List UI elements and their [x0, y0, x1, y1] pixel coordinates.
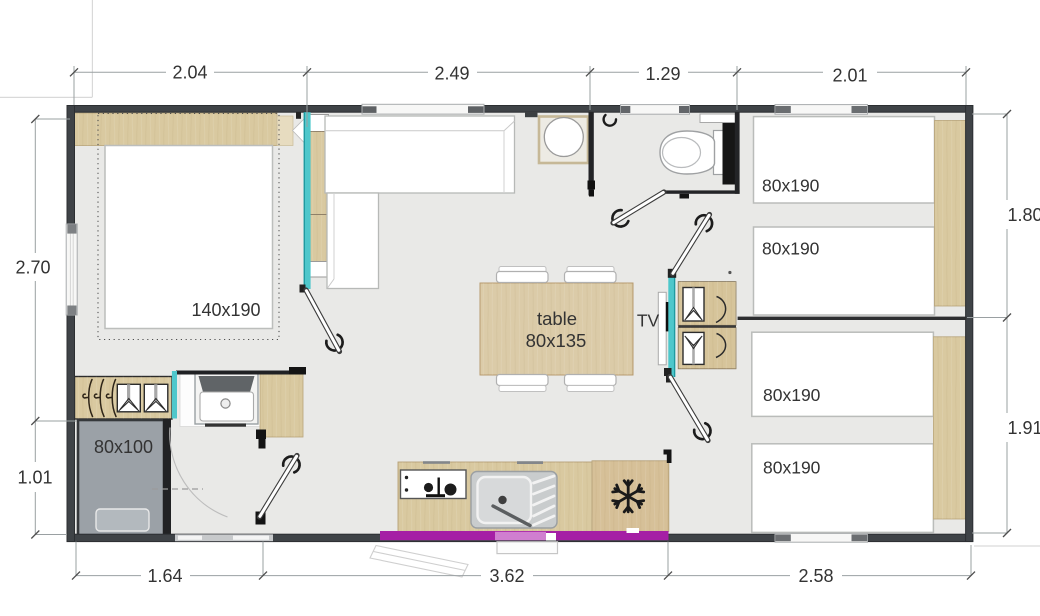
svg-text:80x135: 80x135 [526, 330, 587, 351]
svg-text:2.04: 2.04 [172, 63, 207, 83]
svg-text:table: table [537, 308, 577, 329]
svg-text:80x100: 80x100 [94, 437, 153, 457]
svg-text:80x190: 80x190 [762, 239, 820, 259]
svg-text:80x190: 80x190 [763, 458, 821, 478]
svg-text:80x190: 80x190 [763, 385, 821, 405]
svg-text:1.29: 1.29 [645, 64, 680, 84]
svg-text:1.91: 1.91 [1007, 418, 1040, 438]
svg-text:3.62: 3.62 [489, 566, 524, 586]
svg-text:2.01: 2.01 [832, 66, 867, 86]
svg-text:1.80: 1.80 [1007, 205, 1040, 225]
svg-text:1.01: 1.01 [17, 468, 52, 488]
svg-text:2.70: 2.70 [15, 258, 50, 278]
svg-text:2.49: 2.49 [434, 64, 469, 84]
svg-text:1.64: 1.64 [147, 566, 182, 586]
svg-text:TV: TV [637, 311, 660, 331]
svg-text:140x190: 140x190 [191, 300, 260, 320]
svg-text:2.58: 2.58 [798, 566, 833, 586]
svg-text:80x190: 80x190 [762, 176, 820, 196]
